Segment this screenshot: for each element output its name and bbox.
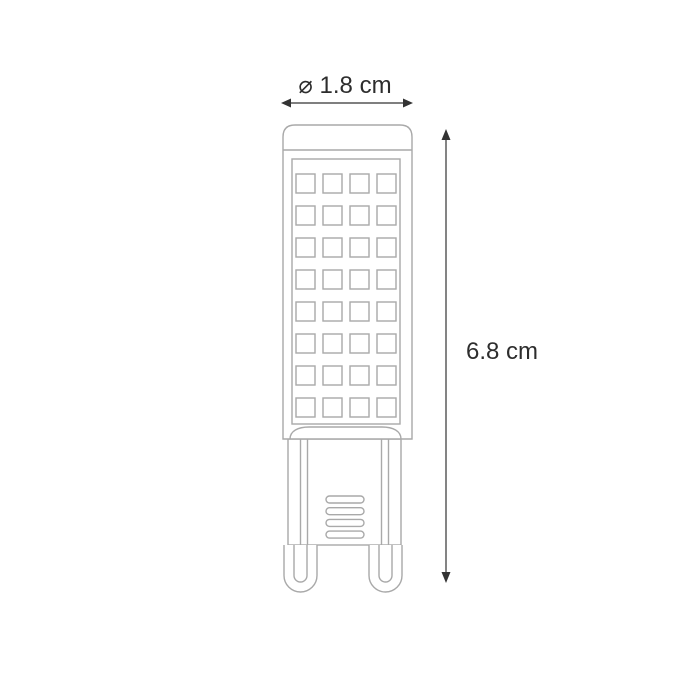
led-chip [350,302,369,321]
bulb-base [288,439,401,545]
bulb-dimension-drawing: ⌀ 1.8 cm 6.8 cm [0,0,687,687]
led-chip [296,206,315,225]
led-chip [350,366,369,385]
pin-right-outer-loop [369,545,402,592]
led-chip [350,270,369,289]
bulb-drawing [283,125,412,592]
led-chip [377,206,396,225]
arrowhead-right-icon [403,99,413,108]
bulb-body [283,125,412,439]
led-chip [350,334,369,353]
led-chip [323,366,342,385]
led-chip [377,334,396,353]
led-chip [323,302,342,321]
led-chip [377,270,396,289]
led-chip [323,398,342,417]
product-dimension-diagram: ⌀ 1.8 cm 6.8 cm [0,0,687,687]
led-chip [350,206,369,225]
led-chip [323,174,342,193]
led-chip [377,302,396,321]
arrowhead-left-icon [281,99,291,108]
arrowhead-up-icon [442,129,451,140]
diameter-dimension: ⌀ 1.8 cm [281,72,413,108]
led-chip [296,270,315,289]
led-chip [323,270,342,289]
height-dimension: 6.8 cm [442,129,539,583]
led-chip [296,174,315,193]
led-chip [296,366,315,385]
pin-left [284,545,317,592]
led-chip [323,206,342,225]
arrowhead-down-icon [442,572,451,583]
led-chip [377,398,396,417]
led-chip [350,398,369,417]
led-chip [323,238,342,257]
led-chip [296,398,315,417]
base-body [288,439,401,545]
led-chip [350,174,369,193]
led-chip [296,238,315,257]
led-chip [296,334,315,353]
pin-left-outer-loop [284,545,317,592]
led-chip [377,238,396,257]
led-chip [377,366,396,385]
led-chip [296,302,315,321]
pin-right [369,545,402,592]
led-chip [377,174,396,193]
height-label: 6.8 cm [466,338,538,365]
led-chip [350,238,369,257]
led-chip [323,334,342,353]
diameter-label: ⌀ 1.8 cm [298,72,391,99]
